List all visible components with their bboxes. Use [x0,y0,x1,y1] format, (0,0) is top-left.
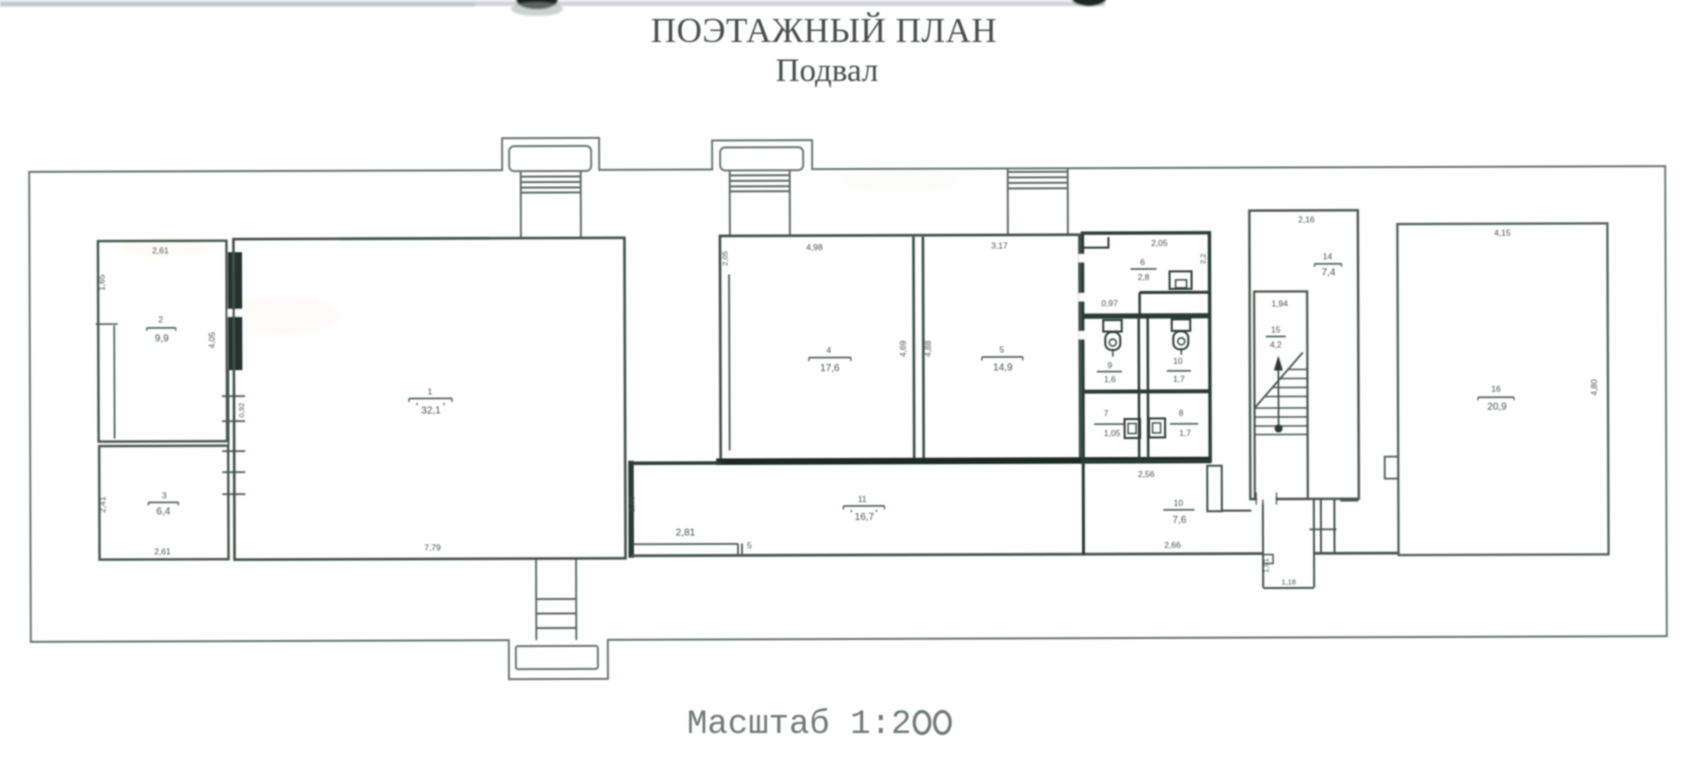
svg-text:7: 7 [1104,408,1109,418]
svg-text:7,6: 7,6 [1172,515,1186,526]
svg-text:1,7: 1,7 [1173,374,1185,384]
svg-text:7,79: 7,79 [424,542,441,552]
svg-text:7,4: 7,4 [1322,267,1336,278]
svg-text:4: 4 [826,345,831,355]
svg-text:9,9: 9,9 [155,333,169,344]
svg-text:2,05: 2,05 [1151,238,1168,248]
svg-text:1,65: 1,65 [97,274,107,291]
svg-text:17,6: 17,6 [820,363,840,374]
svg-text:2,61: 2,61 [152,245,169,255]
svg-text:2,61: 2,61 [154,546,171,556]
svg-text:5: 5 [747,540,752,550]
svg-text:2,16: 2,16 [1298,214,1315,224]
svg-text:2,66: 2,66 [1164,540,1181,550]
svg-text:0,97: 0,97 [1101,298,1118,308]
svg-text:6: 6 [1140,257,1145,267]
svg-text:5: 5 [999,344,1004,354]
svg-text:1,01: 1,01 [1262,558,1271,573]
svg-text:6,4: 6,4 [156,506,170,517]
svg-text:11: 11 [858,494,867,504]
svg-text:4,88: 4,88 [923,340,933,357]
svg-text:Подвал: Подвал [776,53,879,89]
svg-text:3: 3 [162,490,167,500]
svg-text:4,2: 4,2 [1270,339,1282,349]
svg-text:4,69: 4,69 [898,340,908,357]
svg-text:1,7: 1,7 [1179,428,1191,438]
svg-text:16: 16 [1491,384,1501,394]
svg-text:1,18: 1,18 [1281,577,1296,586]
svg-text:1: 1 [428,386,433,396]
svg-text:15: 15 [1271,324,1281,334]
svg-text:9: 9 [1107,360,1112,370]
svg-text:16,7: 16,7 [855,512,875,523]
svg-text:1,94: 1,94 [1271,298,1288,308]
svg-text:2,8: 2,8 [1138,272,1150,282]
svg-text:2,81: 2,81 [676,528,696,539]
svg-text:Масштаб 1:2: Масштаб 1:2 [687,706,911,744]
svg-text:14,9: 14,9 [993,362,1013,373]
svg-text:ПОЭТАЖНЫЙ ПЛАН: ПОЭТАЖНЫЙ ПЛАН [651,11,997,50]
svg-text:1,65: 1,65 [626,495,636,512]
svg-text:2,2: 2,2 [1198,254,1207,264]
svg-text:4,98: 4,98 [806,242,823,252]
svg-text:1,6: 1,6 [1104,374,1116,384]
svg-text:0,92: 0,92 [237,403,246,418]
svg-text:2,41: 2,41 [97,496,107,513]
svg-text:4,15: 4,15 [1494,228,1511,238]
svg-text:14: 14 [1323,251,1333,261]
svg-text:1,05: 1,05 [1104,428,1121,438]
svg-text:4,05: 4,05 [207,332,217,349]
svg-text:3,17: 3,17 [991,240,1008,250]
svg-text:2,56: 2,56 [1138,469,1155,479]
svg-text:2: 2 [158,314,163,324]
svg-text:4,80: 4,80 [1589,379,1599,396]
svg-text:2,05: 2,05 [720,251,729,266]
svg-text:10: 10 [1173,356,1183,366]
svg-text:20,9: 20,9 [1487,402,1507,413]
svg-text:32,1: 32,1 [421,405,441,416]
svg-text:8: 8 [1179,408,1184,418]
svg-text:10: 10 [1174,498,1184,508]
